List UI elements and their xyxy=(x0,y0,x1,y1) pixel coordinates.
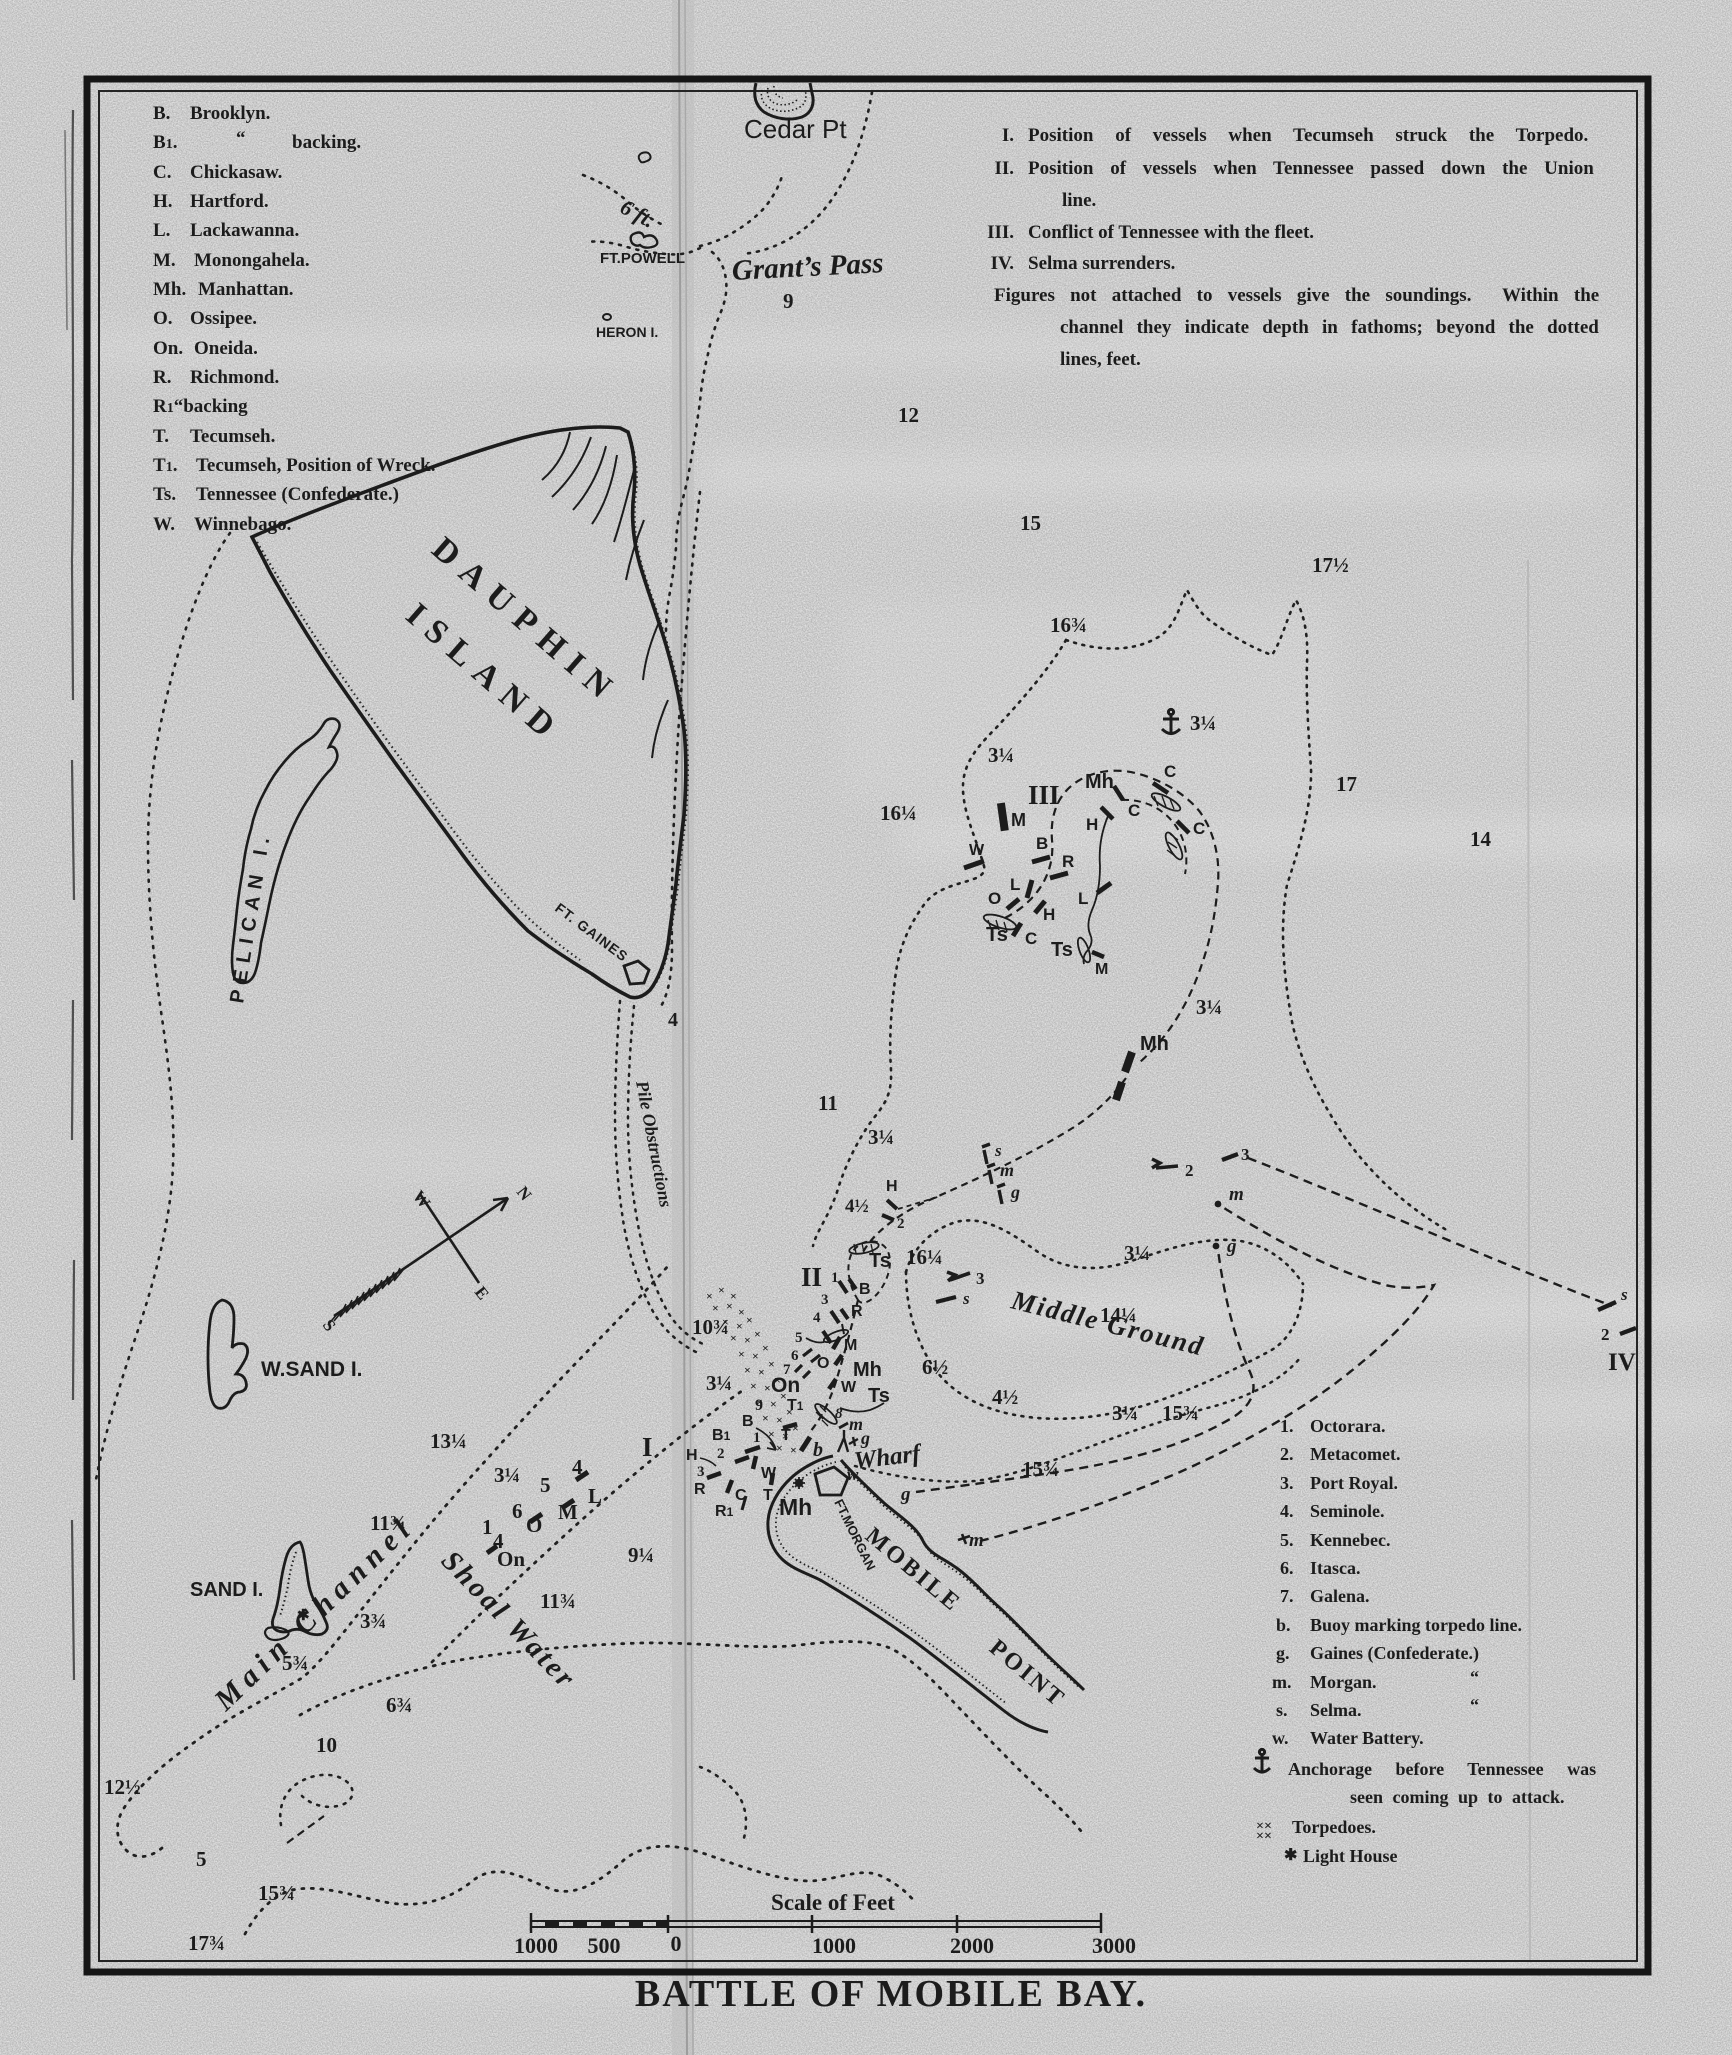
svg-text:HERON I.: HERON I. xyxy=(596,324,658,340)
svg-text:500: 500 xyxy=(588,1933,621,1958)
svg-text:13¼: 13¼ xyxy=(430,1429,467,1453)
svg-text:w: w xyxy=(847,1465,859,1484)
svg-text:s: s xyxy=(1620,1285,1628,1304)
svg-text:0: 0 xyxy=(671,1931,682,1956)
svg-text:H: H xyxy=(886,1178,898,1195)
svg-text:SAND I.: SAND I. xyxy=(190,1579,263,1601)
svg-text:Seminole.: Seminole. xyxy=(1310,1501,1385,1521)
svg-text:M: M xyxy=(1011,810,1026,830)
svg-text:On: On xyxy=(497,1547,525,1571)
svg-text:m: m xyxy=(1229,1184,1244,1205)
svg-text:3¼: 3¼ xyxy=(1196,995,1222,1019)
svg-text:6.: 6. xyxy=(1280,1558,1294,1578)
svg-text:×: × xyxy=(722,1315,729,1329)
svg-text:b: b xyxy=(813,1439,823,1461)
svg-text:✱: ✱ xyxy=(1284,1847,1297,1864)
svg-text:O: O xyxy=(817,1355,829,1372)
svg-text:4.: 4. xyxy=(1280,1501,1294,1521)
svg-text:17: 17 xyxy=(1336,772,1357,796)
svg-text:III: III xyxy=(1028,780,1060,810)
svg-text:Brooklyn.: Brooklyn. xyxy=(190,103,270,124)
svg-text:2000: 2000 xyxy=(950,1933,994,1958)
svg-text:w.: w. xyxy=(1272,1728,1289,1748)
svg-text:×: × xyxy=(780,1389,787,1403)
svg-text:4: 4 xyxy=(668,1009,678,1031)
svg-text:2: 2 xyxy=(717,1446,725,1462)
svg-text:L.: L. xyxy=(153,220,170,241)
svg-text:×: × xyxy=(730,1331,737,1345)
svg-text:×: × xyxy=(762,1341,769,1355)
svg-text:R: R xyxy=(851,1303,863,1320)
svg-text:Light House: Light House xyxy=(1303,1846,1398,1866)
svg-text:O: O xyxy=(988,889,1001,908)
svg-text:Figures not attached to vessel: Figures not attached to vessels give the… xyxy=(994,285,1599,306)
svg-text:Kennebec.: Kennebec. xyxy=(1310,1530,1391,1550)
svg-text:5: 5 xyxy=(795,1330,803,1346)
svg-text:12½: 12½ xyxy=(104,1775,141,1799)
svg-text:6½: 6½ xyxy=(922,1355,948,1379)
svg-text:5: 5 xyxy=(540,1473,551,1497)
svg-text:Ts: Ts xyxy=(869,1250,891,1272)
svg-text:×: × xyxy=(790,1443,797,1457)
svg-text:B1: B1 xyxy=(712,1427,731,1444)
svg-text:Chickasaw.: Chickasaw. xyxy=(190,162,282,183)
svg-text:×: × xyxy=(792,1421,799,1435)
svg-text:C: C xyxy=(1128,801,1140,820)
svg-text:BATTLE OF MOBILE BAY.: BATTLE OF MOBILE BAY. xyxy=(635,1973,1147,2015)
svg-text:×: × xyxy=(764,1381,771,1395)
svg-text:Position of vessels when Tenne: Position of vessels when Tennessee passe… xyxy=(1028,158,1594,179)
svg-text:×: × xyxy=(746,1313,753,1327)
svg-text:Manhattan.: Manhattan. xyxy=(198,279,294,300)
svg-text:15¾: 15¾ xyxy=(258,1881,295,1905)
svg-text:15: 15 xyxy=(1020,511,1041,535)
svg-text:Mh: Mh xyxy=(1140,1033,1169,1055)
svg-text:R1: R1 xyxy=(715,1503,734,1520)
svg-text:3: 3 xyxy=(1241,1145,1250,1164)
svg-text:O.: O. xyxy=(153,308,173,329)
svg-text:Gaines (Confederate.): Gaines (Confederate.) xyxy=(1310,1643,1479,1664)
svg-text:II.: II. xyxy=(994,158,1014,179)
svg-text:seen coming up to attack.: seen coming up to attack. xyxy=(1350,1787,1565,1807)
svg-text:“: “ xyxy=(1470,1667,1479,1687)
svg-text:3: 3 xyxy=(697,1464,705,1480)
svg-text:×: × xyxy=(758,1365,765,1379)
svg-text:1: 1 xyxy=(753,1430,761,1446)
svg-text:11¾: 11¾ xyxy=(540,1589,576,1613)
svg-text:6: 6 xyxy=(791,1348,799,1364)
svg-text:×: × xyxy=(752,1349,759,1363)
svg-text:9: 9 xyxy=(783,289,794,313)
svg-text:×: × xyxy=(738,1347,745,1361)
svg-text:M: M xyxy=(844,1337,857,1354)
svg-text:m: m xyxy=(969,1530,984,1551)
svg-text:16¾: 16¾ xyxy=(1050,613,1087,637)
svg-text:W: W xyxy=(841,1379,857,1396)
svg-text:Octorara.: Octorara. xyxy=(1310,1416,1385,1436)
svg-text:b.: b. xyxy=(1276,1615,1291,1635)
svg-text:×: × xyxy=(786,1405,793,1419)
svg-text:H.: H. xyxy=(153,191,173,212)
svg-text:T1.: T1. xyxy=(153,455,177,476)
svg-text:Tecumseh, Position of Wreck.: Tecumseh, Position of Wreck. xyxy=(196,455,435,476)
svg-text:T: T xyxy=(763,1487,773,1504)
svg-text:Scale of Feet: Scale of Feet xyxy=(771,1890,895,1915)
svg-text:×: × xyxy=(768,1357,775,1371)
svg-text:3: 3 xyxy=(821,1292,829,1308)
svg-text:H: H xyxy=(1086,815,1098,834)
svg-text:W.SAND I.: W.SAND I. xyxy=(261,1358,363,1381)
svg-text:×: × xyxy=(718,1283,725,1297)
svg-text:5¾: 5¾ xyxy=(282,1651,308,1675)
svg-text:C.: C. xyxy=(153,162,171,183)
svg-text:Port Royal.: Port Royal. xyxy=(1310,1473,1398,1493)
svg-text:g: g xyxy=(900,1484,911,1505)
svg-text:1: 1 xyxy=(482,1515,493,1539)
svg-text:Buoy marking torpedo line.: Buoy marking torpedo line. xyxy=(1310,1615,1522,1635)
svg-text:14: 14 xyxy=(1470,827,1492,851)
svg-text:L: L xyxy=(588,1484,602,1508)
svg-text:11: 11 xyxy=(818,1091,838,1115)
svg-text:×: × xyxy=(736,1319,743,1333)
svg-text:g: g xyxy=(1010,1182,1020,1202)
svg-text:Morgan.: Morgan. xyxy=(1310,1672,1377,1692)
svg-text:R.: R. xyxy=(153,367,171,388)
svg-text:Mh: Mh xyxy=(853,1359,882,1381)
svg-text:Lackawanna.: Lackawanna. xyxy=(190,220,299,241)
svg-text:Selma.: Selma. xyxy=(1310,1700,1362,1720)
svg-text:4: 4 xyxy=(813,1310,821,1326)
svg-text:2: 2 xyxy=(1601,1325,1610,1344)
svg-text:g.: g. xyxy=(1276,1643,1290,1663)
svg-text:×: × xyxy=(738,1305,745,1319)
svg-text:H: H xyxy=(1043,905,1055,924)
svg-text:Ossipee.: Ossipee. xyxy=(190,308,257,329)
svg-text:Monongahela.: Monongahela. xyxy=(194,250,310,271)
svg-text:×: × xyxy=(774,1373,781,1387)
svg-text:C: C xyxy=(1193,819,1205,838)
svg-text:17¾: 17¾ xyxy=(188,1931,225,1955)
svg-text:M: M xyxy=(1095,961,1108,978)
svg-text:Water Battery.: Water Battery. xyxy=(1310,1728,1424,1748)
svg-text:1000: 1000 xyxy=(514,1933,558,1958)
svg-text:Anchorage before Tennessee was: Anchorage before Tennessee was xyxy=(1288,1759,1596,1779)
svg-text:6: 6 xyxy=(512,1499,523,1523)
svg-text:×: × xyxy=(744,1333,751,1347)
svg-text:Torpedoes.: Torpedoes. xyxy=(1292,1817,1376,1837)
svg-text:Ts: Ts xyxy=(986,924,1008,946)
svg-text:×: × xyxy=(776,1441,783,1455)
svg-text:14¼: 14¼ xyxy=(1100,1303,1137,1327)
svg-text:2.: 2. xyxy=(1280,1444,1294,1464)
svg-text:1: 1 xyxy=(831,1270,839,1286)
svg-text:6¾: 6¾ xyxy=(386,1693,412,1717)
svg-text:3¼: 3¼ xyxy=(868,1125,894,1149)
svg-text:I.: I. xyxy=(1002,125,1014,146)
svg-text:Ts: Ts xyxy=(1051,939,1073,961)
svg-text:lines, feet.: lines, feet. xyxy=(1060,349,1141,370)
svg-text:3¼: 3¼ xyxy=(1112,1401,1138,1425)
svg-text:channel they indicate depth in: channel they indicate depth in fathoms; … xyxy=(1060,317,1599,338)
svg-text:L: L xyxy=(1078,889,1088,908)
svg-text:Richmond.: Richmond. xyxy=(190,367,279,388)
svg-text:12: 12 xyxy=(898,403,919,427)
svg-text:I: I xyxy=(642,1432,653,1462)
svg-text:Position of vessels when Tecum: Position of vessels when Tecumseh struck… xyxy=(1028,125,1588,146)
svg-text:m.: m. xyxy=(1272,1672,1292,1692)
svg-text:8: 8 xyxy=(835,1406,843,1422)
svg-text:g: g xyxy=(1226,1236,1237,1257)
svg-text:W: W xyxy=(969,842,985,859)
svg-text:×: × xyxy=(782,1429,789,1443)
svg-text:3¼: 3¼ xyxy=(494,1463,520,1487)
svg-text:×: × xyxy=(776,1413,783,1427)
svg-text:3¼: 3¼ xyxy=(1124,1241,1150,1265)
svg-text:3¼: 3¼ xyxy=(706,1371,732,1395)
svg-text:Conflict of Tennessee with the: Conflict of Tennessee with the fleet. xyxy=(1028,222,1314,243)
svg-text:s: s xyxy=(994,1141,1002,1160)
svg-text:10: 10 xyxy=(316,1733,337,1757)
svg-text:Cedar Pt: Cedar Pt xyxy=(744,114,847,144)
svg-text:16¼: 16¼ xyxy=(880,801,917,825)
svg-text:3¾: 3¾ xyxy=(360,1609,386,1633)
svg-text:3.: 3. xyxy=(1280,1473,1294,1493)
svg-text:B: B xyxy=(1036,834,1048,853)
svg-text:C: C xyxy=(1164,762,1176,781)
svg-text:B1.: B1. xyxy=(153,132,177,153)
svg-text:Ts.: Ts. xyxy=(153,484,176,505)
svg-text:s: s xyxy=(962,1289,970,1308)
svg-text:B: B xyxy=(742,1413,754,1430)
svg-text:line.: line. xyxy=(1062,190,1096,211)
svg-text:16¼: 16¼ xyxy=(906,1245,943,1269)
svg-text:IV.: IV. xyxy=(991,253,1014,274)
svg-text:backing.: backing. xyxy=(292,132,361,153)
svg-text:3¼: 3¼ xyxy=(1190,711,1216,735)
svg-text:II: II xyxy=(801,1262,822,1292)
svg-text:2: 2 xyxy=(897,1216,905,1232)
svg-text:3000: 3000 xyxy=(1092,1933,1136,1958)
svg-text:H: H xyxy=(686,1447,698,1464)
svg-text:T.: T. xyxy=(153,426,169,447)
svg-text:B.: B. xyxy=(153,103,170,124)
svg-text:“: “ xyxy=(236,128,246,149)
svg-text:FT.POWELL: FT.POWELL xyxy=(600,250,685,267)
svg-text:11¾: 11¾ xyxy=(370,1511,406,1535)
svg-text:B: B xyxy=(859,1281,871,1298)
svg-text:Ts: Ts xyxy=(868,1385,890,1407)
svg-text:×: × xyxy=(712,1301,719,1315)
svg-text:4½: 4½ xyxy=(845,1196,869,1217)
svg-text:Metacomet.: Metacomet. xyxy=(1310,1444,1400,1464)
svg-text:×: × xyxy=(750,1379,757,1393)
svg-text:R: R xyxy=(694,1481,706,1498)
svg-text:×: × xyxy=(770,1397,777,1411)
svg-text:×: × xyxy=(756,1395,763,1409)
svg-text:m: m xyxy=(1000,1160,1014,1180)
svg-text:3¼: 3¼ xyxy=(988,743,1014,767)
svg-text:IV: IV xyxy=(1608,1349,1636,1376)
svg-text:Itasca.: Itasca. xyxy=(1310,1558,1361,1578)
svg-text:On.: On. xyxy=(153,338,183,359)
svg-text:Oneida.: Oneida. xyxy=(194,338,258,359)
svg-text:2: 2 xyxy=(1185,1161,1194,1180)
svg-text:7.: 7. xyxy=(1280,1586,1294,1606)
svg-text:s.: s. xyxy=(1276,1700,1288,1720)
svg-text:W.: W. xyxy=(153,514,175,535)
svg-text:××: ×× xyxy=(1256,1829,1272,1844)
svg-text:5: 5 xyxy=(196,1847,207,1871)
svg-text:×: × xyxy=(726,1299,733,1313)
svg-text:Galena.: Galena. xyxy=(1310,1586,1370,1606)
svg-text:×: × xyxy=(768,1427,775,1441)
svg-text:9¼: 9¼ xyxy=(628,1543,654,1567)
svg-text:L: L xyxy=(1010,875,1020,894)
svg-text:C: C xyxy=(1025,929,1037,948)
svg-text:Tennessee (Confederate.): Tennessee (Confederate.) xyxy=(196,484,399,505)
svg-text:Hartford.: Hartford. xyxy=(190,191,269,212)
svg-text:3: 3 xyxy=(976,1269,985,1288)
svg-text:Winnebago.: Winnebago. xyxy=(194,514,291,535)
svg-text:×: × xyxy=(744,1363,751,1377)
svg-text:1000: 1000 xyxy=(812,1933,856,1958)
svg-text:Mh: Mh xyxy=(779,1494,812,1520)
svg-text:R: R xyxy=(1062,852,1074,871)
svg-text:“: “ xyxy=(1470,1695,1479,1715)
svg-text:Selma surrenders.: Selma surrenders. xyxy=(1028,253,1175,274)
svg-text:Mh.: Mh. xyxy=(153,279,186,300)
svg-text:×: × xyxy=(762,1411,769,1425)
svg-text:×: × xyxy=(754,1327,761,1341)
svg-text:g: g xyxy=(860,1428,870,1448)
svg-text:III.: III. xyxy=(987,222,1014,243)
svg-text:M.: M. xyxy=(153,250,176,271)
svg-text:1.: 1. xyxy=(1280,1416,1294,1436)
svg-text:4½: 4½ xyxy=(992,1385,1018,1409)
svg-text:5.: 5. xyxy=(1280,1530,1294,1550)
svg-text:17½: 17½ xyxy=(1312,553,1349,577)
svg-text:Tecumseh.: Tecumseh. xyxy=(190,426,275,447)
